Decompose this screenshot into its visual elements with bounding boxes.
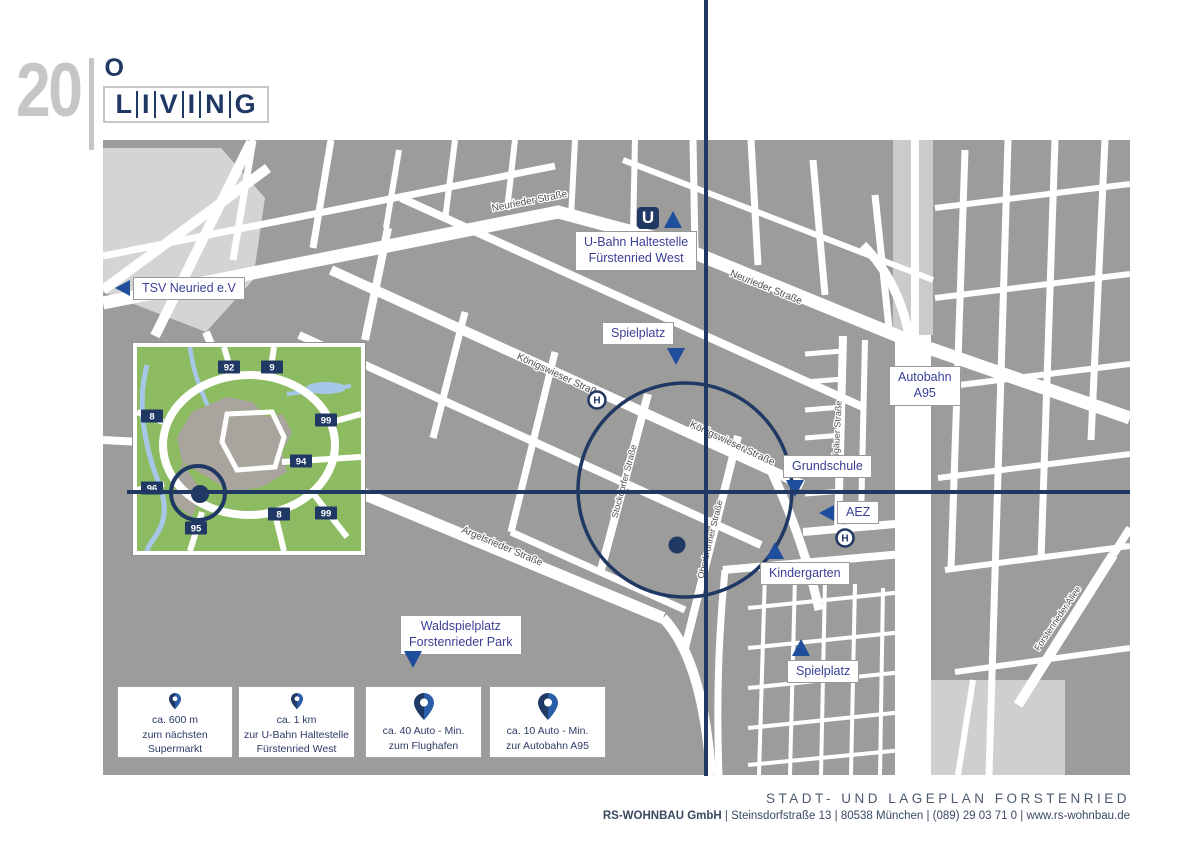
crosshair-vertical-line [704, 0, 708, 776]
location-pin-icon [414, 693, 434, 721]
ubahn-icon: U [637, 207, 659, 229]
road-badge: 9 [269, 363, 274, 374]
pointer-up-icon [766, 542, 784, 559]
logo-wordmark: O LIVING [103, 56, 269, 123]
pointer-down-icon [404, 651, 422, 668]
road-badge: 92 [224, 363, 235, 374]
label-tsv-neuried: TSV Neuried e.V [133, 277, 245, 300]
logo: 20 O LIVING [16, 56, 269, 150]
distance-line: zum nächsten [142, 728, 207, 743]
inset-location-dot [191, 485, 209, 503]
road-badge: 99 [321, 416, 332, 427]
label-spielplatz-top: Spielplatz [602, 322, 674, 345]
pointer-left-icon [115, 280, 130, 296]
label-line: Autobahn [898, 369, 952, 385]
logo-number: 20 [16, 56, 80, 126]
pointer-left-icon [819, 505, 834, 521]
label-autobahn-a95: Autobahn A95 [889, 366, 961, 406]
logo-letter: I [138, 91, 156, 118]
label-waldspielplatz: Waldspielplatz Forstenrieder Park [400, 615, 522, 655]
label-line: Waldspielplatz [409, 618, 513, 634]
company-name: RS-WOHNBAU GmbH [603, 810, 722, 822]
distance-line: zur Autobahn A95 [506, 739, 589, 754]
logo-living: LIVING [103, 86, 269, 123]
road-badge: 94 [296, 457, 307, 468]
label-spielplatz-bottom: Spielplatz [787, 660, 859, 683]
overview-inset-map: 92 9 8 99 94 96 8 99 95 [133, 343, 365, 555]
pointer-down-icon [667, 348, 685, 365]
distance-line: zum Flughafen [389, 739, 458, 754]
pointer-up-icon [792, 639, 810, 656]
road-badge: 95 [191, 524, 202, 535]
distance-line: zur U-Bahn Haltestelle [244, 728, 349, 743]
road-badge: 8 [276, 510, 281, 521]
label-line: A95 [898, 385, 952, 401]
logo-o: O [105, 56, 269, 81]
distance-line: ca. 600 m [152, 713, 198, 728]
company-address: RS-WOHNBAU GmbH | Steinsdorfstraße 13 | … [603, 810, 1130, 822]
label-line: Fürstenried West [584, 250, 688, 266]
logo-letter: G [231, 91, 260, 118]
road-badge: 99 [321, 509, 332, 520]
road-badge: 8 [149, 412, 154, 423]
label-line: Forstenrieder Park [409, 634, 513, 650]
label-grundschule: Grundschule [783, 455, 872, 478]
location-pin-icon [538, 693, 558, 721]
distance-card-supermarkt: ca. 600 m zum nächsten Supermarkt [117, 686, 233, 758]
distance-line: ca. 10 Auto - Min. [507, 724, 589, 739]
distance-line: ca. 1 km [277, 713, 317, 728]
inset-map-graphic: 92 9 8 99 94 96 8 99 95 [137, 347, 361, 551]
city-map: Neurieder Straße Neurieder Straße Königs… [103, 140, 1130, 775]
logo-letter: V [156, 91, 184, 118]
crosshair-horizontal-line [127, 490, 1130, 494]
street-label-oberbrunner: Oberbrunner Straße [695, 499, 724, 580]
location-pin-icon [165, 693, 185, 710]
logo-bar [89, 58, 94, 150]
distance-card-ubahn: ca. 1 km zur U-Bahn Haltestelle Fürstenr… [238, 686, 355, 758]
pointer-down-icon [786, 480, 804, 497]
page-title: STADT- UND LAGEPLAN FORSTENRIED [766, 791, 1130, 806]
label-kindergarten: Kindergarten [760, 562, 850, 585]
distance-card-flughafen: ca. 40 Auto - Min. zum Flughafen [365, 686, 482, 758]
brochure-page: 20 O LIVING [0, 0, 1200, 849]
distance-line: ca. 40 Auto - Min. [383, 724, 465, 739]
label-line: U-Bahn Haltestelle [584, 234, 688, 250]
bus-stop-letter: H [593, 396, 600, 407]
address-details: | Steinsdorfstraße 13 | 80538 München | … [722, 810, 1130, 822]
distance-card-autobahn: ca. 10 Auto - Min. zur Autobahn A95 [489, 686, 606, 758]
street-label-argelsrieder: Argelsrieder Straße [460, 525, 545, 569]
location-pin-icon [287, 693, 307, 710]
pointer-up-icon [664, 211, 682, 228]
logo-letter: I [184, 91, 202, 118]
distance-line: Fürstenried West [257, 742, 337, 757]
bus-stop-letter: H [841, 534, 848, 545]
label-aez: AEZ [837, 501, 879, 524]
distance-line: Supermarkt [148, 742, 202, 757]
property-location-dot [669, 537, 686, 554]
logo-letter: N [201, 91, 231, 118]
logo-letter: L [112, 91, 139, 118]
label-ubahn-haltestelle: U-Bahn Haltestelle Fürstenried West [575, 231, 697, 271]
